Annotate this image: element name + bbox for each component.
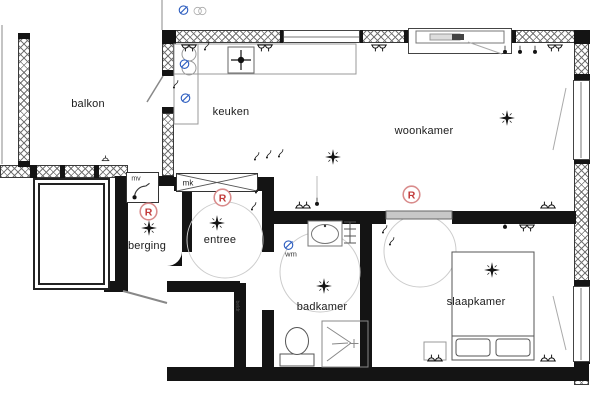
water-point-icon <box>176 2 191 17</box>
bedroom-door-leaf <box>386 211 452 219</box>
turning-circle-bathroom <box>280 232 360 312</box>
wall-living-divider-right <box>452 211 576 224</box>
svg-text:R: R <box>144 206 152 218</box>
socket-double-icon <box>539 349 557 367</box>
label-mk: mk <box>183 179 194 188</box>
wall-bath-bedroom-divider <box>360 224 372 380</box>
spotlight-icon <box>310 196 324 210</box>
towel-radiator <box>344 222 356 243</box>
ceiling-light-icon <box>314 276 334 296</box>
room-label-slaapkamer: slaapkamer <box>447 296 506 308</box>
socket-single-icon <box>99 152 112 165</box>
ceiling-light-icon <box>497 108 517 128</box>
ceiling-light-icon <box>323 147 343 167</box>
wall-entree-bottom <box>167 281 240 292</box>
ceiling-light-icon <box>482 260 502 280</box>
window-top-kitchen <box>283 30 360 43</box>
room-label-berging: berging <box>128 240 166 252</box>
nightstand <box>424 342 446 360</box>
socket-double-icon <box>426 349 444 367</box>
front-door-leaf <box>123 291 167 303</box>
label-beldr: beldr <box>234 300 240 311</box>
svg-text:R: R <box>407 189 415 201</box>
room-label-badkamer: badkamer <box>297 301 348 313</box>
window-right-bedroom <box>573 286 590 362</box>
ceiling-light-icon <box>139 218 159 238</box>
spotlight-icon <box>513 44 527 58</box>
label-mv: mv <box>131 176 140 183</box>
room-label-keuken: keuken <box>213 106 250 118</box>
room-label-entree: entree <box>204 234 236 246</box>
wall-living-divider-left <box>262 211 386 224</box>
switch-hook-icon <box>385 234 399 248</box>
ceiling-light-icon <box>207 213 227 233</box>
switch-hook-icon <box>274 146 288 160</box>
room-label-woonkamer: woonkamer <box>395 125 454 137</box>
gray-circles-icon <box>192 3 208 19</box>
smoke-detector-icon: R <box>401 184 422 205</box>
exterior-wall-top <box>165 30 590 43</box>
cooktop <box>228 47 254 73</box>
wall-shaft <box>234 283 246 380</box>
switch-hook-icon <box>378 222 392 236</box>
turning-circle-bedroom <box>384 215 456 287</box>
room-label-balkon: balkon <box>71 98 105 110</box>
wall-berging-right <box>182 186 192 252</box>
water-point-icon <box>177 56 192 71</box>
kitchen-wall-lower <box>162 113 174 176</box>
switch-hook-icon <box>247 199 261 213</box>
window-right-living <box>573 80 590 160</box>
label-wm: wm <box>285 250 297 259</box>
berging-door <box>167 251 182 266</box>
washbasin <box>308 221 342 246</box>
balcony-door-leaf <box>147 76 163 102</box>
water-point-icon <box>178 90 193 105</box>
switch-hook-icon <box>169 77 183 91</box>
balcony-screen <box>33 178 110 290</box>
switch-hook-icon <box>250 149 264 163</box>
wall-bottom <box>167 367 578 381</box>
balcony-wall-left <box>18 33 30 168</box>
floor-plan: balkon keuken woonkamer berging entree b… <box>0 0 600 400</box>
spotlight-icon <box>528 44 542 58</box>
svg-text:R: R <box>218 192 226 204</box>
switch-hook-icon <box>262 147 276 161</box>
toilet <box>280 328 314 367</box>
kitchen-counter <box>174 44 356 124</box>
window-door-top-living <box>408 28 512 54</box>
